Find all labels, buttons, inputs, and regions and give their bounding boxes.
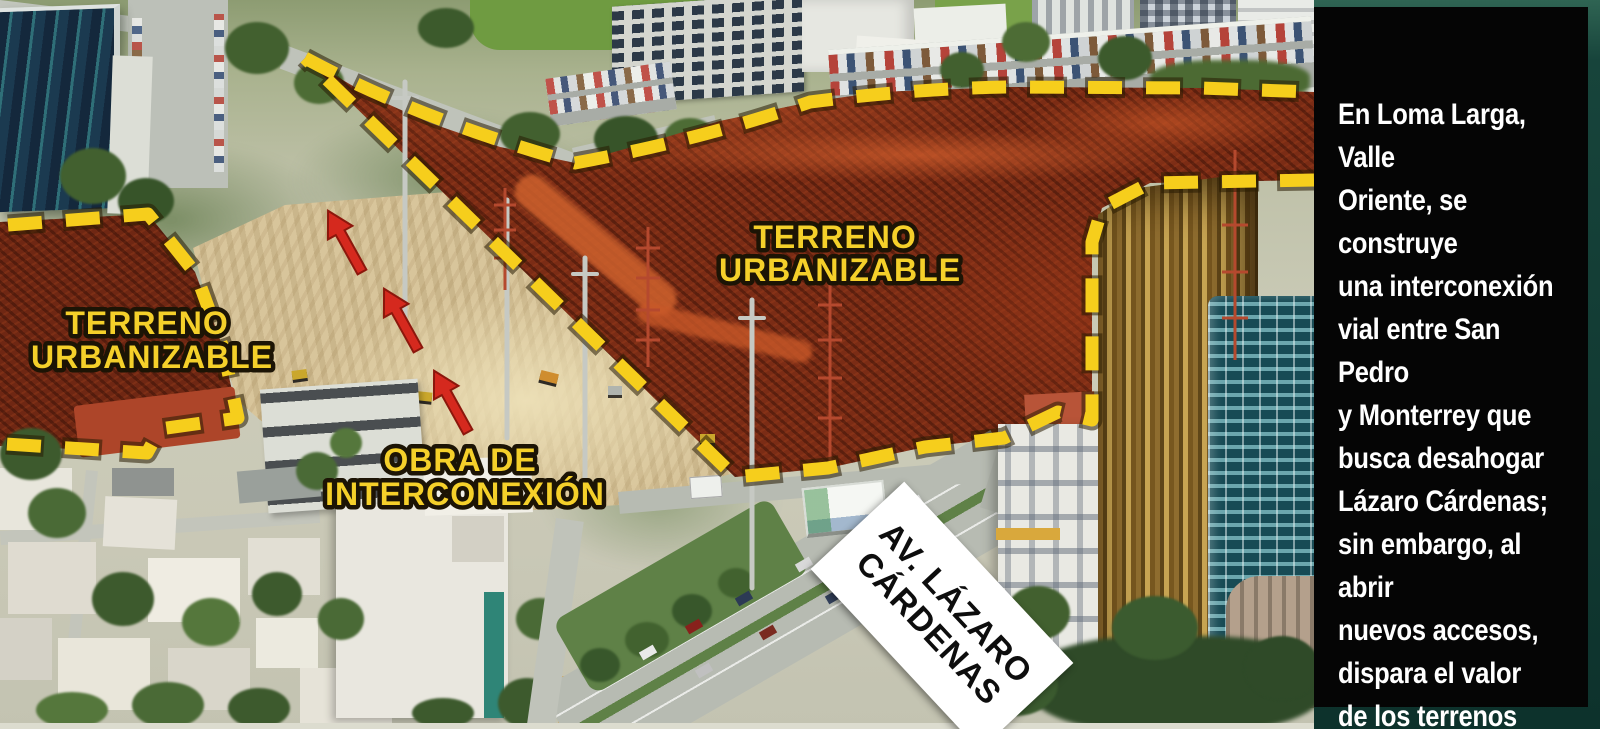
palm-tree: [296, 452, 338, 490]
rooftop-unit: [452, 516, 504, 562]
tree: [28, 488, 86, 538]
house: [256, 618, 318, 668]
palm-tree: [330, 428, 362, 458]
tree: [228, 688, 290, 728]
parked-cars: [214, 14, 224, 172]
tree: [1112, 596, 1198, 660]
caption-panel-frame: En Loma Larga, Valle Oriente, se constru…: [1314, 0, 1600, 729]
tree: [418, 8, 474, 48]
tree: [225, 22, 289, 74]
dirt-ridge: [1020, 92, 1312, 154]
tree: [1098, 36, 1152, 80]
house: [8, 542, 96, 614]
parking-lot: [545, 61, 676, 126]
tree: [132, 682, 204, 728]
building: [423, 456, 533, 516]
tree: [0, 428, 62, 480]
tree: [1244, 636, 1314, 700]
tree: [318, 598, 364, 640]
machinery: [608, 386, 622, 395]
tree: [92, 572, 154, 626]
roof-gray: [112, 468, 174, 496]
machinery: [418, 391, 433, 401]
caption-panel: En Loma Larga, Valle Oriente, se constru…: [1314, 7, 1588, 707]
house: [0, 618, 52, 680]
tree: [60, 148, 126, 204]
sign: [689, 475, 722, 499]
tree: [1002, 22, 1050, 62]
house: [103, 496, 178, 550]
tree: [940, 52, 984, 88]
tree: [182, 598, 240, 646]
tree: [252, 572, 302, 616]
infographic: TERRENO URBANIZABLE TERRENO URBANIZABLE …: [0, 0, 1600, 729]
aerial-photo: [0, 0, 1314, 729]
hotel-awning: [996, 528, 1060, 540]
caption-text: En Loma Larga, Valle Oriente, se constru…: [1338, 93, 1568, 729]
machinery: [700, 434, 715, 443]
tree: [580, 648, 620, 682]
photo-bottom-edge: [0, 723, 1314, 729]
